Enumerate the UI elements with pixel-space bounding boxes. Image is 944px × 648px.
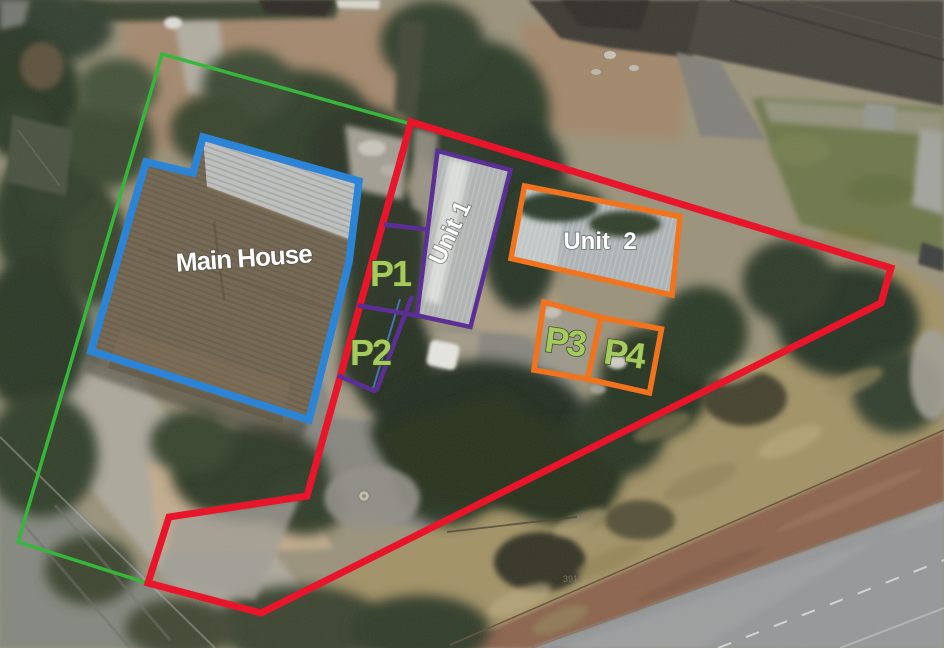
svg-text:P2: P2 (350, 332, 391, 373)
svg-text:Unit 2: Unit 2 (563, 228, 636, 255)
svg-text:P4: P4 (601, 330, 648, 376)
svg-text:P3: P3 (542, 318, 588, 364)
svg-text:P1: P1 (370, 253, 412, 294)
